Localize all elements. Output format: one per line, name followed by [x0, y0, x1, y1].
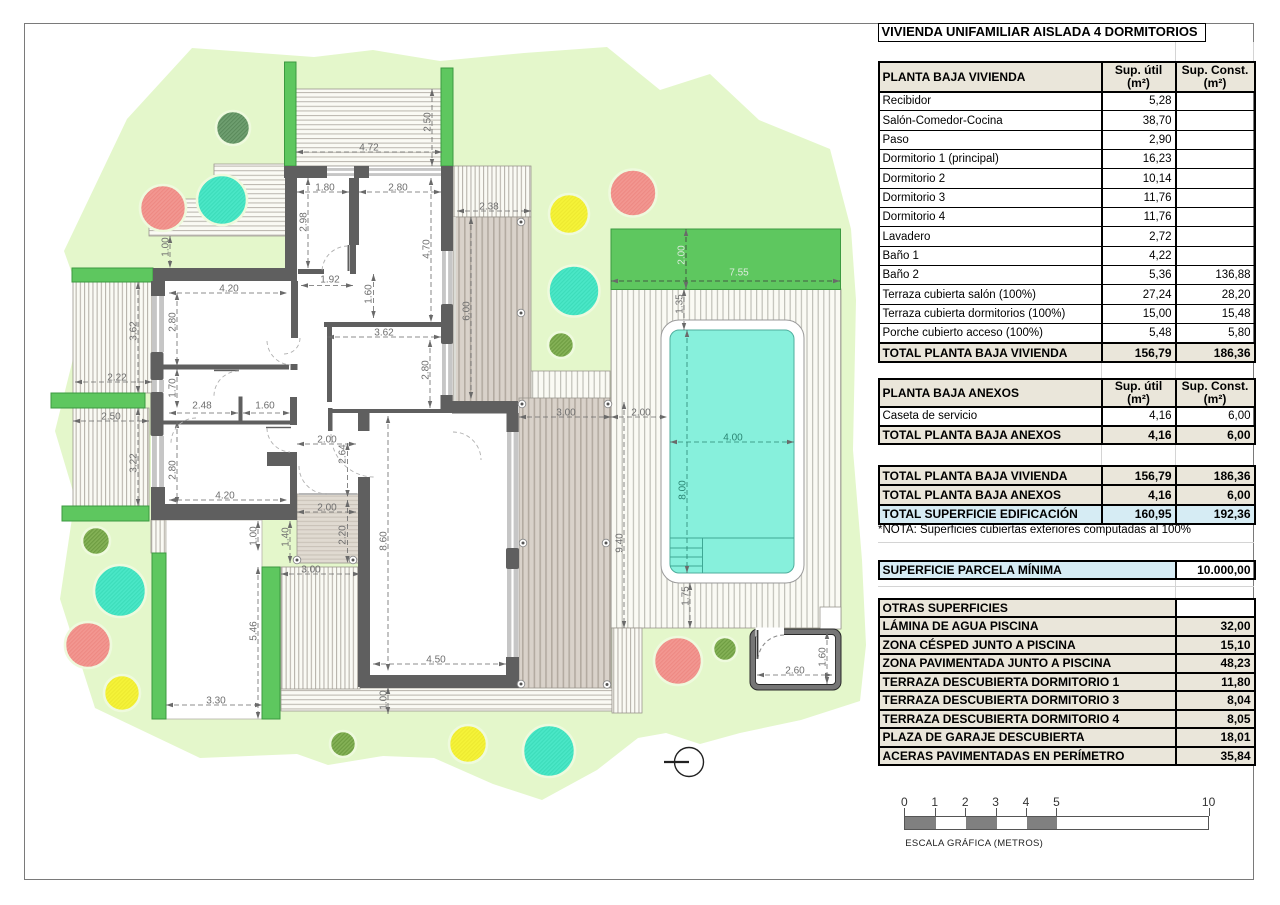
- svg-text:2.50: 2.50: [101, 412, 121, 423]
- svg-text:3.00: 3.00: [301, 565, 321, 576]
- svg-text:1.60: 1.60: [818, 647, 829, 667]
- svg-text:1.92: 1.92: [320, 275, 340, 286]
- svg-text:2.80: 2.80: [388, 183, 408, 194]
- svg-text:1.00: 1.00: [379, 690, 390, 710]
- svg-text:2.00: 2.00: [631, 408, 651, 419]
- svg-text:1.00: 1.00: [161, 237, 172, 257]
- svg-text:1.70: 1.70: [168, 378, 179, 398]
- svg-text:3.62: 3.62: [129, 321, 140, 341]
- svg-text:2.00: 2.00: [317, 503, 337, 514]
- svg-text:3.30: 3.30: [206, 696, 226, 707]
- svg-text:3.62: 3.62: [374, 328, 394, 339]
- svg-text:4.20: 4.20: [219, 284, 239, 295]
- svg-text:2.50: 2.50: [423, 112, 434, 132]
- svg-text:1.80: 1.80: [315, 183, 335, 194]
- svg-text:4.70: 4.70: [422, 239, 433, 259]
- svg-text:4.72: 4.72: [359, 143, 379, 154]
- svg-text:2.20: 2.20: [338, 525, 349, 545]
- svg-text:2.60: 2.60: [785, 666, 805, 677]
- svg-text:2.22: 2.22: [107, 373, 127, 384]
- svg-text:2.64: 2.64: [338, 444, 349, 464]
- svg-text:8.60: 8.60: [379, 531, 390, 551]
- svg-text:1.60: 1.60: [364, 284, 375, 304]
- svg-text:2.00: 2.00: [677, 245, 688, 265]
- svg-text:2.00: 2.00: [317, 435, 337, 446]
- svg-text:4.20: 4.20: [215, 491, 235, 502]
- svg-text:9.40: 9.40: [615, 533, 626, 553]
- svg-text:3.00: 3.00: [556, 408, 576, 419]
- svg-text:4.00: 4.00: [723, 433, 743, 444]
- svg-text:2.80: 2.80: [421, 360, 432, 380]
- svg-text:4.50: 4.50: [426, 655, 446, 666]
- svg-text:1.35: 1.35: [675, 294, 686, 314]
- svg-text:1.75: 1.75: [681, 586, 692, 606]
- svg-text:2.80: 2.80: [168, 312, 179, 332]
- svg-text:2.48: 2.48: [192, 401, 212, 412]
- svg-text:3.22: 3.22: [129, 453, 140, 473]
- svg-text:1.60: 1.60: [255, 401, 275, 412]
- svg-text:7.55: 7.55: [729, 268, 749, 279]
- svg-text:1.00: 1.00: [249, 526, 260, 546]
- svg-text:6.00: 6.00: [462, 301, 473, 321]
- svg-text:8.00: 8.00: [678, 480, 689, 500]
- svg-text:5.46: 5.46: [249, 621, 260, 641]
- svg-text:2.80: 2.80: [168, 460, 179, 480]
- svg-text:2.38: 2.38: [479, 202, 499, 213]
- svg-text:2.98: 2.98: [299, 212, 310, 232]
- svg-text:1.40: 1.40: [281, 527, 292, 547]
